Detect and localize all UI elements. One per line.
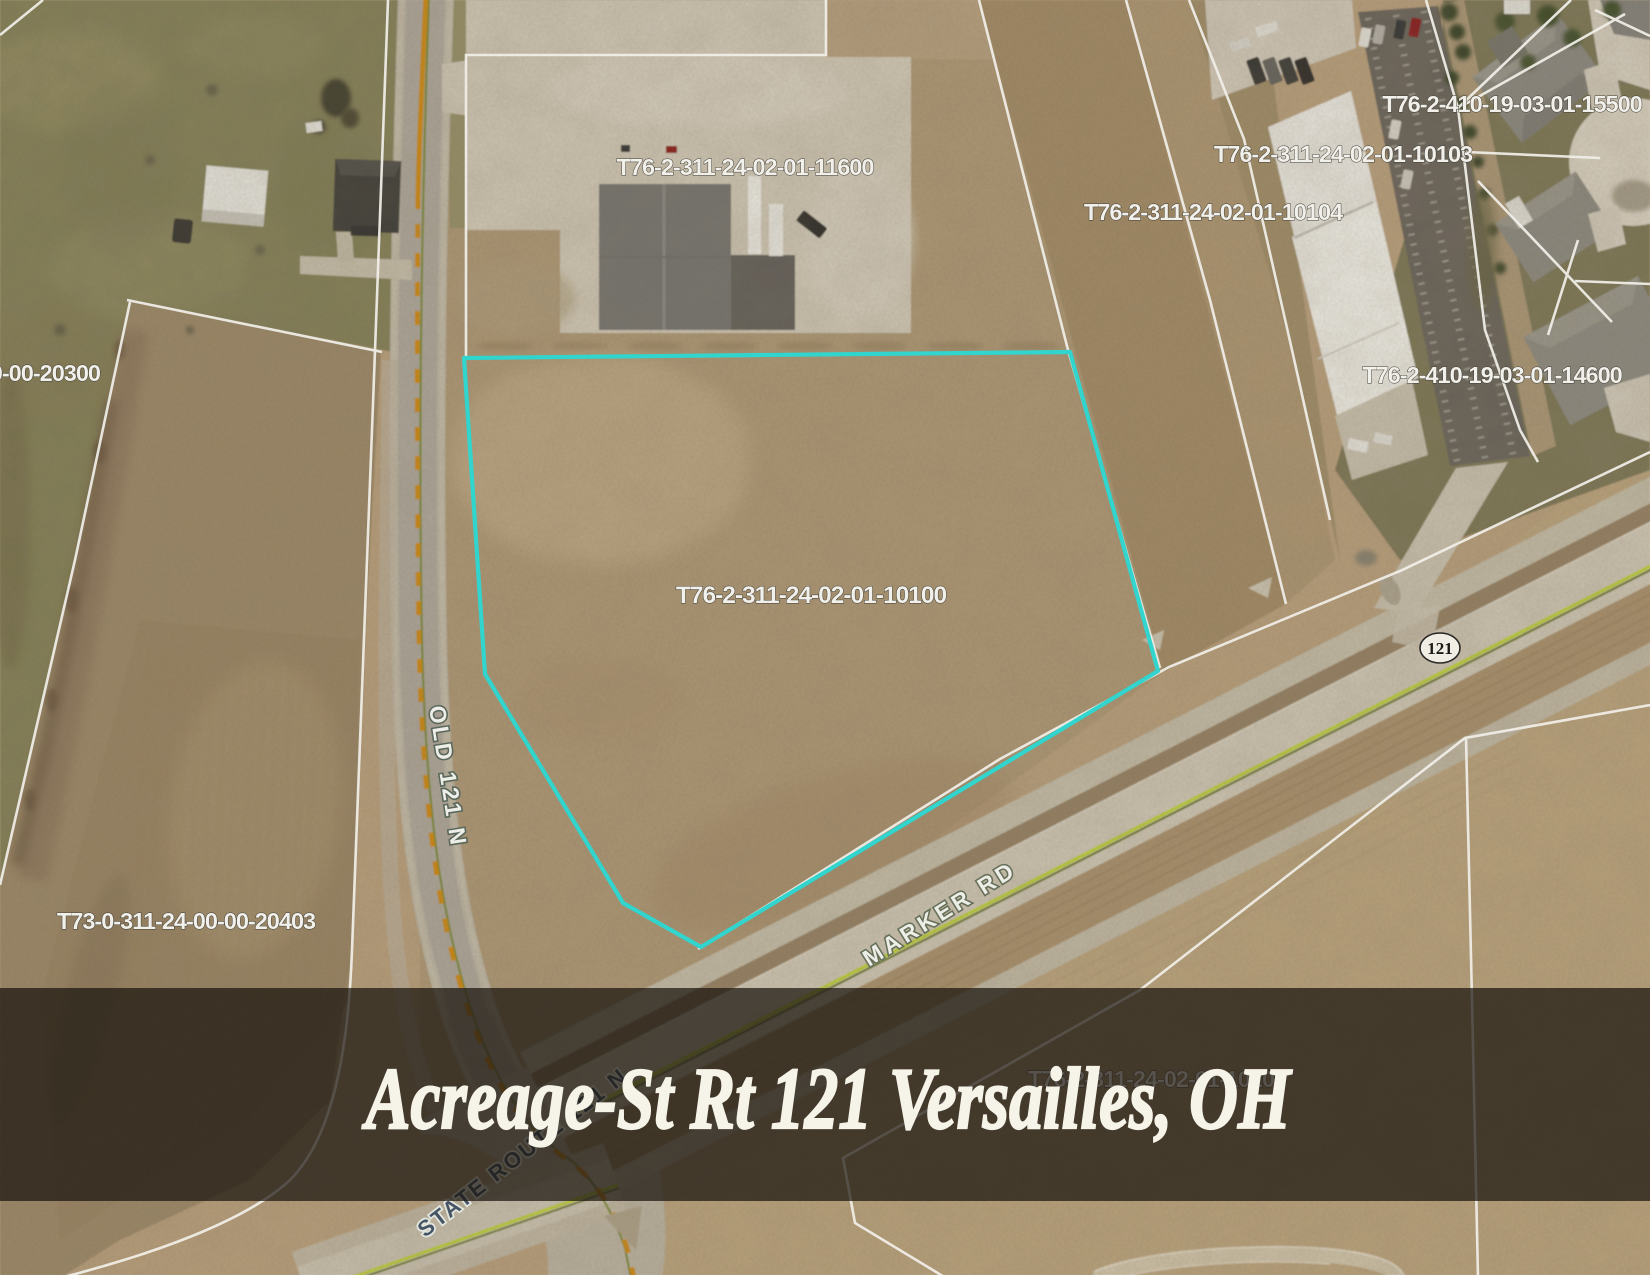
svg-text:T76-2-410-19-03-01-15500: T76-2-410-19-03-01-15500 [1382, 91, 1642, 117]
svg-text:T76-2-311-24-02-01-10104: T76-2-311-24-02-01-10104 [1084, 199, 1343, 225]
svg-text:T73-0-311-24-00-00-20300: T73-0-311-24-00-00-20300 [0, 360, 101, 386]
svg-text:Acreage-St Rt 121 Versailles,: Acreage-St Rt 121 Versailles, OH [362, 1051, 1293, 1148]
svg-text:T76-2-311-24-02-01-11600: T76-2-311-24-02-01-11600 [617, 154, 875, 180]
svg-text:121: 121 [1427, 639, 1453, 658]
svg-text:T76-2-311-24-02-01-10100: T76-2-311-24-02-01-10100 [676, 582, 947, 609]
svg-text:T73-0-311-24-00-00-20403: T73-0-311-24-00-00-20403 [57, 908, 316, 934]
svg-text:T76-2-410-19-03-01-14600: T76-2-410-19-03-01-14600 [1362, 362, 1622, 388]
svg-text:T76-2-311-24-02-01-10103: T76-2-311-24-02-01-10103 [1214, 141, 1473, 167]
